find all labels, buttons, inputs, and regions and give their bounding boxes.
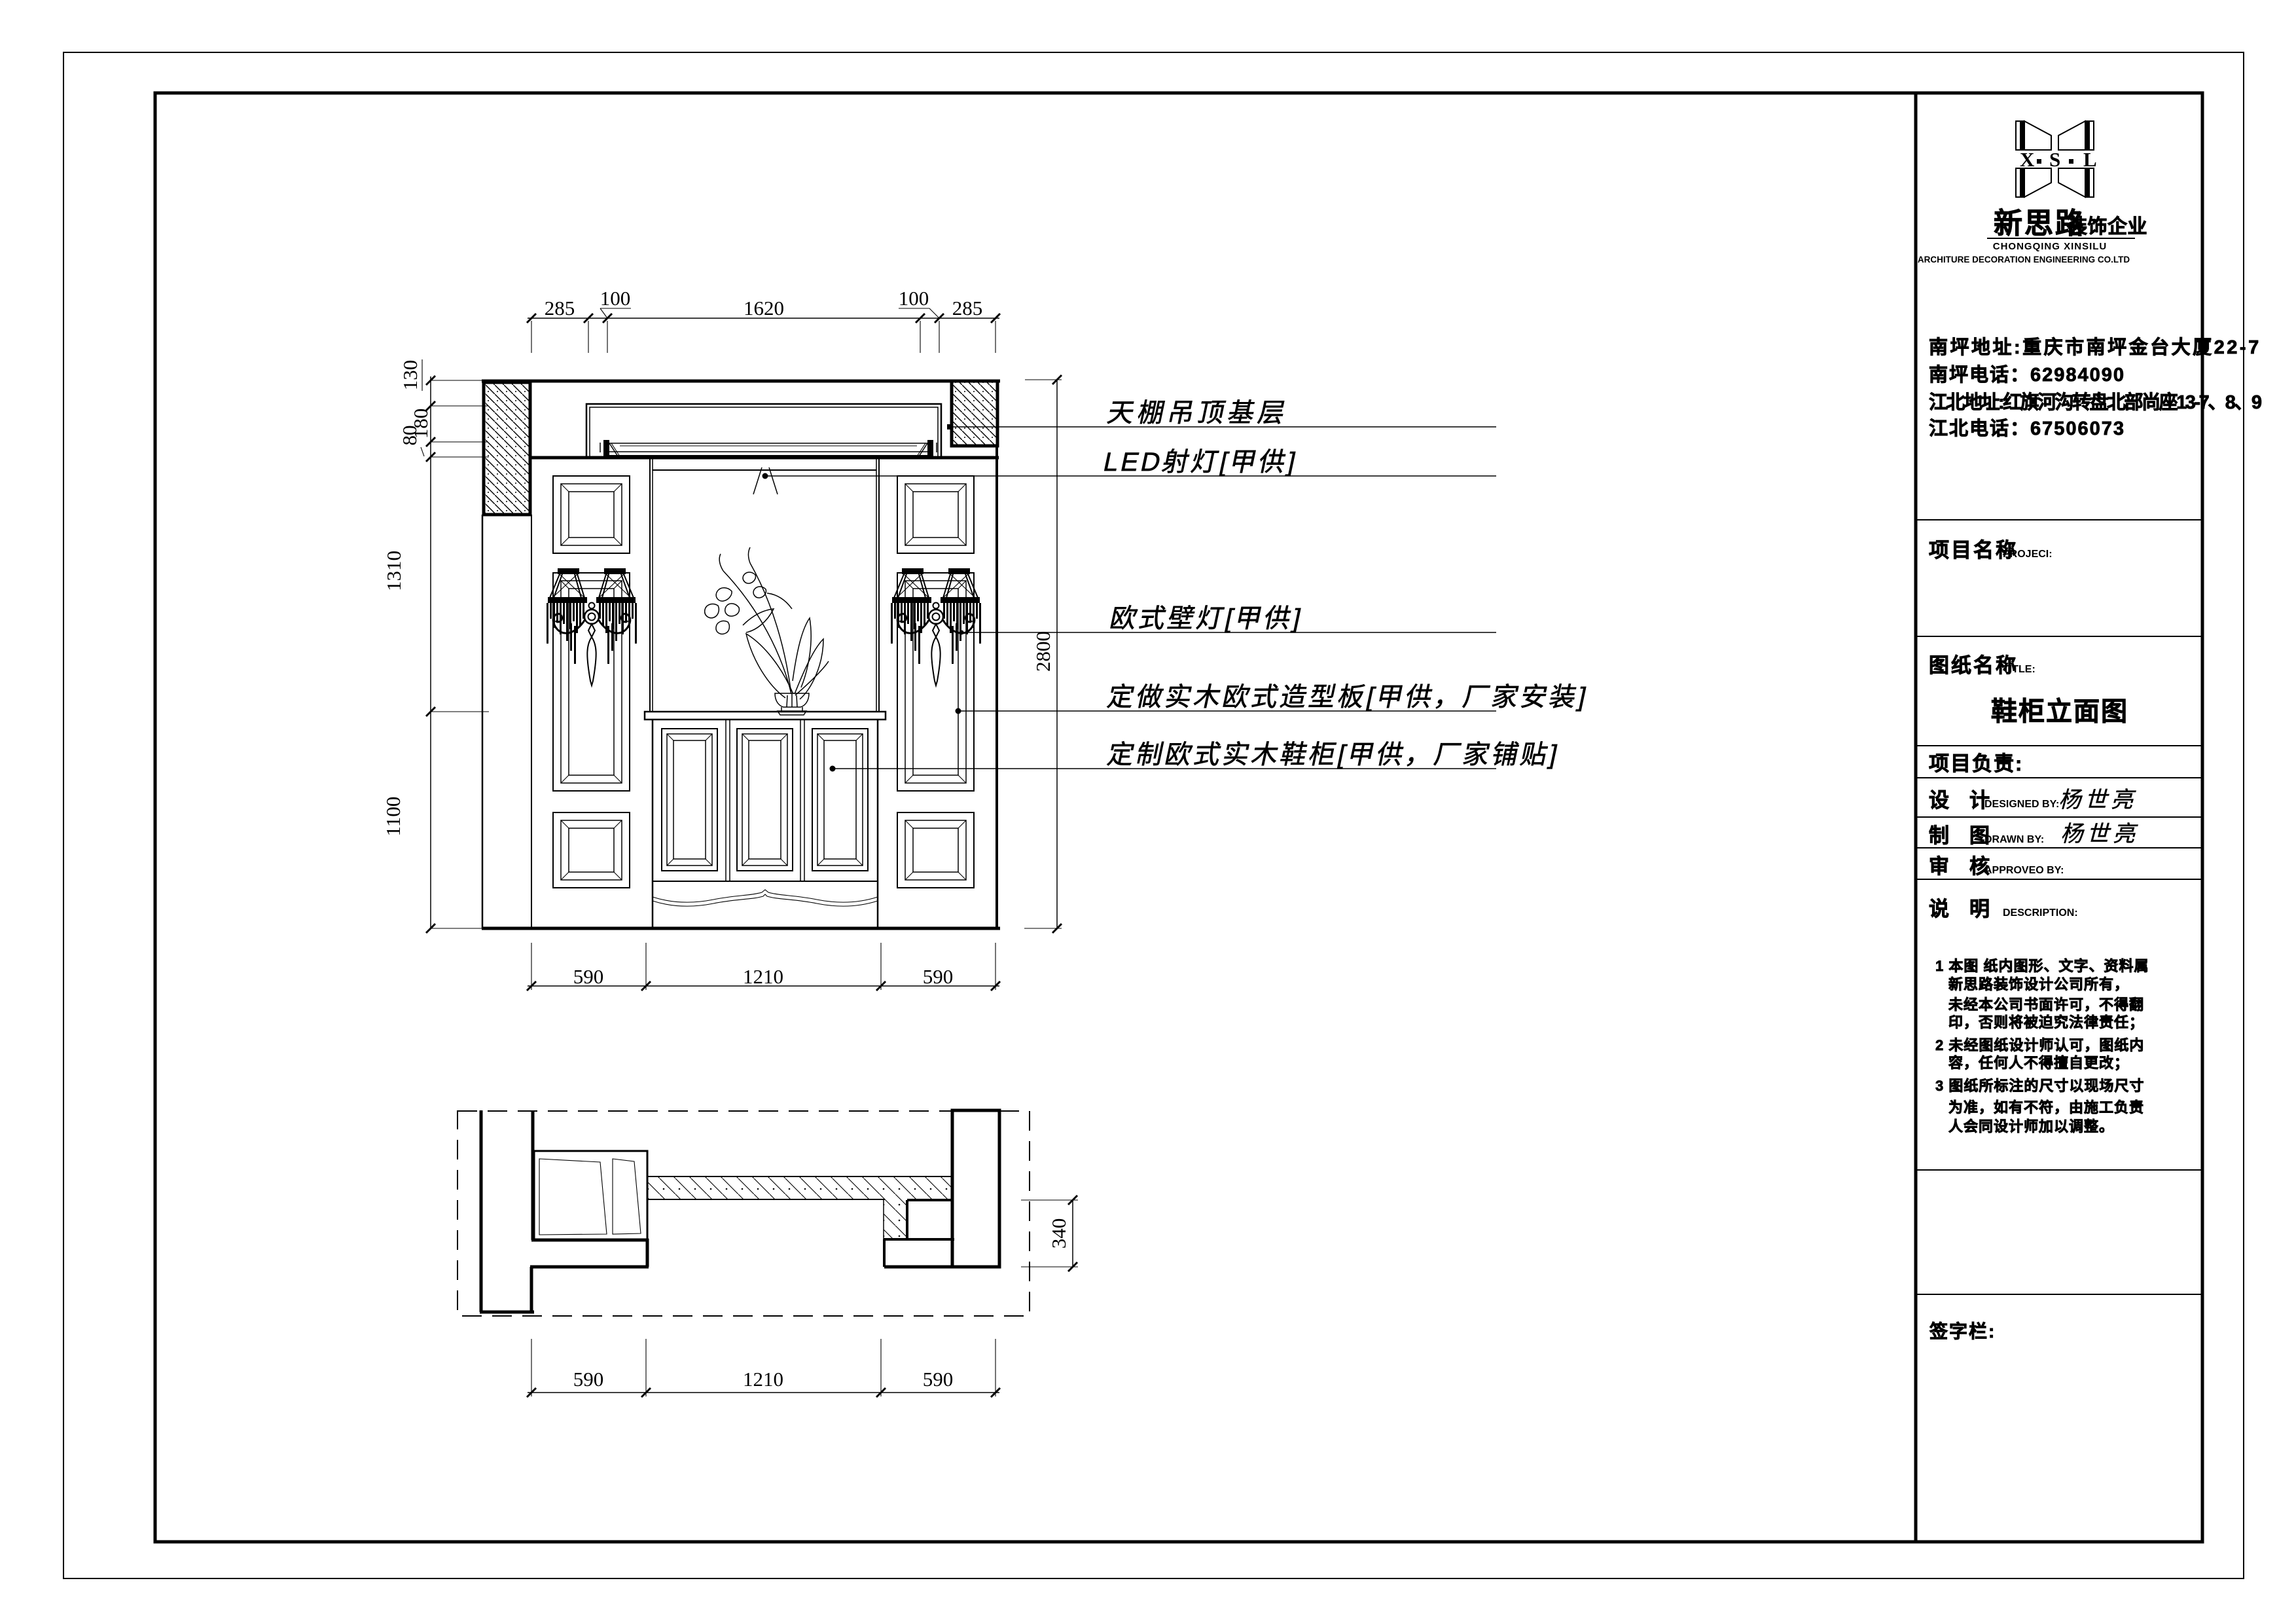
svg-text:340: 340 bbox=[1047, 1218, 1070, 1249]
svg-text:南坪地址:重庆市南坪金台大厦22-7: 南坪地址:重庆市南坪金台大厦22-7 bbox=[1929, 336, 2261, 358]
svg-text:印，否则将被迫究法律责任；: 印，否则将被迫究法律责任； bbox=[1948, 1014, 2144, 1030]
svg-text:1210: 1210 bbox=[743, 965, 783, 988]
svg-text:590: 590 bbox=[573, 1368, 604, 1391]
svg-text:APPROVEO BY:: APPROVEO BY: bbox=[1984, 865, 2064, 876]
svg-text:天棚吊顶基层: 天棚吊顶基层 bbox=[1105, 397, 1292, 427]
svg-text:鞋柜立面图: 鞋柜立面图 bbox=[1991, 697, 2128, 726]
svg-text:590: 590 bbox=[923, 965, 954, 988]
svg-text:80: 80 bbox=[398, 426, 421, 446]
svg-text:L: L bbox=[2083, 148, 2097, 171]
svg-text:定做实木欧式造型板[甲供，厂家安装]: 定做实木欧式造型板[甲供，厂家安装] bbox=[1105, 682, 1592, 711]
svg-text:3 图纸所标注的尺寸以现场尺寸: 3 图纸所标注的尺寸以现场尺寸 bbox=[1935, 1078, 2144, 1094]
svg-text:CHONGQING XINSILU: CHONGQING XINSILU bbox=[1993, 241, 2108, 252]
svg-text:DRAWN BY:: DRAWN BY: bbox=[1984, 834, 2044, 845]
svg-text:杨世亮: 杨世亮 bbox=[2057, 788, 2142, 812]
svg-text:590: 590 bbox=[923, 1368, 954, 1391]
svg-text:江北地址:红旗河沟转盘北部尚座13-7、8、9: 江北地址:红旗河沟转盘北部尚座13-7、8、9 bbox=[1929, 391, 2262, 413]
svg-text:PROJECI:: PROJECI: bbox=[2003, 549, 2053, 560]
svg-text:100: 100 bbox=[600, 287, 631, 310]
svg-text:人会同设计师加以调整。: 人会同设计师加以调整。 bbox=[1948, 1118, 2114, 1135]
svg-text:签字栏:: 签字栏: bbox=[1929, 1321, 1996, 1341]
svg-text:新思路装饰设计公司所有，: 新思路装饰设计公司所有， bbox=[1948, 976, 2129, 993]
svg-text:LED射灯[甲供]: LED射灯[甲供] bbox=[1101, 447, 1301, 476]
svg-text:项目负责:: 项目负责: bbox=[1929, 752, 2023, 775]
svg-text:未经本公司书面许可，不得翻: 未经本公司书面许可，不得翻 bbox=[1948, 996, 2144, 1013]
svg-text:设 计: 设 计 bbox=[1929, 789, 1990, 812]
svg-text:定制欧式实木鞋柜[甲供，厂家铺贴]: 定制欧式实木鞋柜[甲供，厂家铺贴] bbox=[1105, 739, 1563, 769]
svg-text:1310: 1310 bbox=[382, 551, 405, 591]
svg-text:说 明: 说 明 bbox=[1929, 898, 1990, 921]
svg-text:285: 285 bbox=[952, 297, 983, 319]
svg-text:容，任何人不得擅自更改；: 容，任何人不得擅自更改； bbox=[1948, 1055, 2129, 1071]
svg-text:130: 130 bbox=[399, 360, 422, 391]
svg-text:DESIGNED BY:: DESIGNED BY: bbox=[1984, 799, 2059, 810]
svg-text:制 图: 制 图 bbox=[1929, 824, 1990, 847]
svg-text:装饰企业: 装饰企业 bbox=[2068, 215, 2147, 238]
svg-text:为准，如有不符，由施工负责: 为准，如有不符，由施工负责 bbox=[1948, 1099, 2144, 1116]
svg-text:S: S bbox=[2049, 148, 2060, 171]
svg-text:1 本图 纸内图形、文字、资料属: 1 本图 纸内图形、文字、资料属 bbox=[1935, 958, 2149, 974]
svg-text:1620: 1620 bbox=[744, 297, 784, 319]
svg-text:TITLE:: TITLE: bbox=[2003, 664, 2036, 675]
svg-text:审 核: 审 核 bbox=[1929, 855, 1990, 878]
svg-text:南坪电话：62984090: 南坪电话：62984090 bbox=[1929, 364, 2125, 386]
svg-text:欧式壁灯[甲供]: 欧式壁灯[甲供] bbox=[1107, 603, 1306, 632]
svg-text:2800: 2800 bbox=[1031, 631, 1054, 672]
svg-text:1210: 1210 bbox=[743, 1368, 783, 1391]
svg-text:285: 285 bbox=[545, 297, 575, 319]
svg-text:2 未经图纸设计师认可，图纸内: 2 未经图纸设计师认可，图纸内 bbox=[1935, 1037, 2144, 1053]
svg-text:590: 590 bbox=[573, 965, 604, 988]
svg-text:100: 100 bbox=[899, 287, 929, 310]
svg-text:杨世亮: 杨世亮 bbox=[2059, 822, 2144, 847]
svg-text:X: X bbox=[2020, 148, 2035, 171]
svg-text:ARCHITURE DECORATION ENGINEERI: ARCHITURE DECORATION ENGINEERING CO.LTD bbox=[1918, 255, 2130, 264]
svg-text:江北电话：67506073: 江北电话：67506073 bbox=[1929, 418, 2125, 439]
svg-text:DESCRIPTION:: DESCRIPTION: bbox=[2003, 907, 2078, 919]
svg-text:1100: 1100 bbox=[382, 797, 404, 837]
